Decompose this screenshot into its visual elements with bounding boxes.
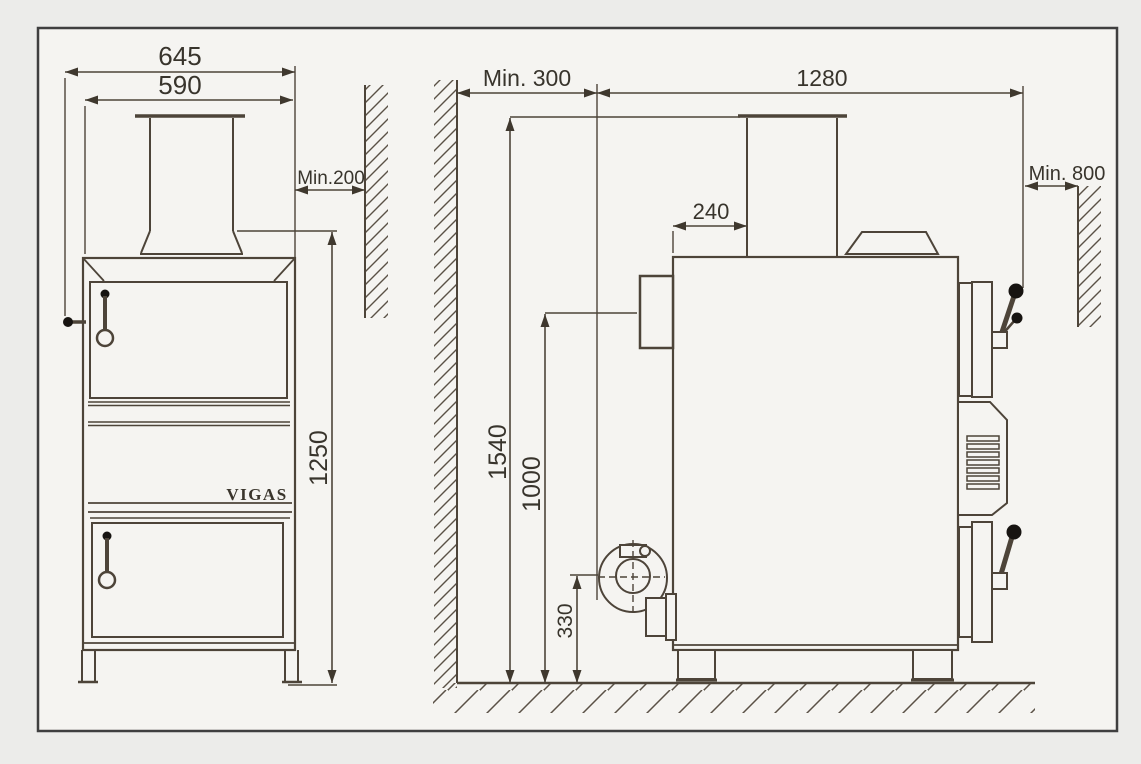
boiler-dimensions-diagram: 645 590 Min.200 1250: [0, 0, 1141, 764]
dim-1540-label: 1540: [484, 424, 512, 480]
control-panel: [958, 402, 1007, 515]
dim-min800-label: Min. 800: [1029, 163, 1106, 185]
dim-330-label: 330: [554, 603, 577, 638]
dim-240-label: 240: [693, 199, 730, 224]
dim-min200-label: Min.200: [297, 168, 365, 189]
dim-645-label: 645: [158, 41, 201, 71]
side-view-rear-wall: [1078, 186, 1101, 327]
technical-drawing: 645 590 Min.200 1250: [0, 0, 1141, 764]
dim-1250-label: 1250: [305, 430, 333, 486]
side-view-left-wall: [434, 80, 457, 688]
lower-door: [92, 523, 283, 637]
side-boiler-body: [673, 257, 958, 650]
flue-outlet: [640, 276, 673, 348]
dimension-side-wall-clearance: Min.200: [295, 168, 365, 195]
floor: [433, 683, 1035, 713]
dim-1000-label: 1000: [518, 456, 546, 512]
upper-door: [90, 282, 287, 398]
front-view-wall-hatch: [365, 85, 388, 318]
dim-1280-label: 1280: [796, 65, 847, 91]
fan-flange: [666, 594, 676, 640]
fan-duct: [646, 598, 668, 636]
brand-logo: VIGAS: [226, 485, 287, 504]
dim-min300-label: Min. 300: [483, 65, 571, 91]
front-boiler-body: VIGAS: [63, 258, 302, 682]
dim-590-label: 590: [158, 70, 201, 100]
top-flap: [846, 232, 938, 254]
